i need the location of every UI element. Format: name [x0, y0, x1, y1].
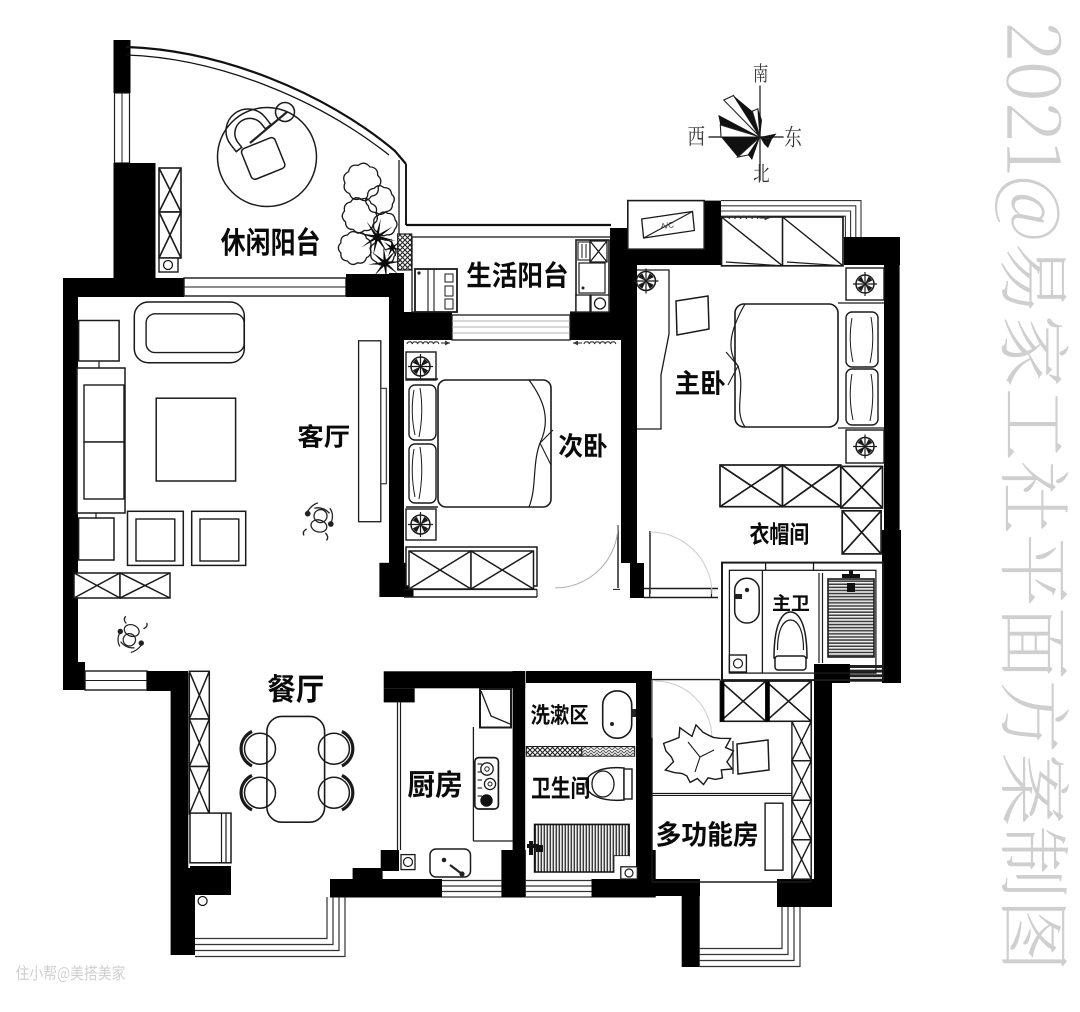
svg-text:A/C: A/C — [660, 220, 675, 231]
